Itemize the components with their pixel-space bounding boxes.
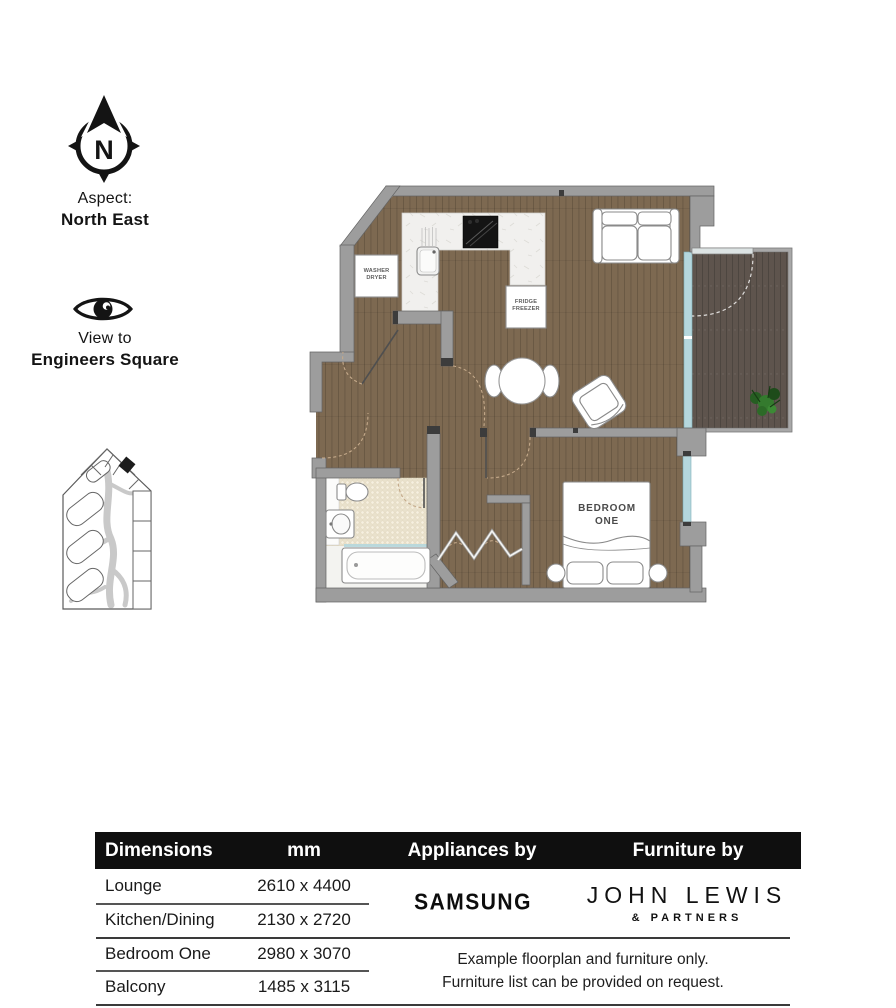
disclaimer-note: Example floorplan and furniture only. Fu…: [373, 937, 793, 1004]
compass-west-tick: [68, 140, 79, 152]
bedside-table-right: [649, 564, 667, 582]
glazing: [683, 252, 692, 522]
bedroom-one-label-1: BEDROOM: [578, 503, 636, 514]
aspect-label: Aspect:: [30, 190, 180, 208]
compass-north-letter: N: [94, 135, 114, 165]
header-appliances-by: Appliances by: [392, 832, 552, 869]
room-name: Balcony: [105, 970, 165, 1003]
bedside-table-left: [547, 564, 565, 582]
apartment-floorplan: WASHER DRYER FRIDGE FREEZER BEDROOM ONE: [300, 172, 800, 612]
fridge-freezer-label-1: FRIDGE: [515, 299, 537, 305]
sofa: [593, 209, 679, 263]
bedroom-one-label-2: ONE: [595, 516, 619, 527]
john-lewis-logo: JOHN LEWIS & PARTNERS: [547, 869, 827, 937]
view-to-value: Engineers Square: [10, 350, 200, 370]
hob: [463, 216, 498, 248]
dimensions-table: Dimensions mm Appliances by Furniture by…: [95, 832, 801, 1008]
view-to-label: View to: [30, 330, 180, 348]
table-bottom-divider: [96, 1004, 790, 1006]
kitchen-sink: [417, 247, 439, 275]
bathtub: [342, 548, 430, 583]
disclaimer-line-1: Example floorplan and furniture only.: [457, 948, 708, 971]
basin: [326, 510, 354, 538]
room-name: Lounge: [105, 869, 162, 902]
site-plan-map: [55, 437, 157, 617]
toilet: [337, 483, 368, 501]
fridge-freezer-label-2: FREEZER: [512, 306, 540, 312]
washer-dryer-label-2: DRYER: [366, 275, 386, 281]
bed: [563, 482, 650, 588]
compass-east-tick: [129, 140, 140, 152]
john-lewis-logo-text: JOHN LEWIS: [587, 882, 788, 909]
balcony: [690, 248, 792, 432]
room-name: Kitchen/Dining: [105, 903, 215, 936]
room-size: 1485 x 3115: [244, 970, 364, 1003]
header-dimensions: Dimensions: [105, 832, 213, 869]
bedroom-window: [683, 456, 691, 522]
header-mm: mm: [244, 832, 364, 869]
table-header-row: Dimensions mm Appliances by Furniture by: [95, 832, 801, 869]
disclaimer-line-2: Furniture list can be provided on reques…: [442, 971, 724, 994]
eye-icon: [70, 291, 136, 327]
compass-icon: N: [66, 92, 142, 184]
balcony-door-leaf: [692, 248, 753, 254]
room-name: Bedroom One: [105, 937, 211, 970]
compass-south-tick: [98, 172, 110, 183]
aspect-value: North East: [15, 210, 195, 230]
floorplan-page: N Aspect: North East View to Engineers S…: [0, 0, 896, 1008]
room-size: 2980 x 3070: [244, 937, 364, 970]
washer-dryer-label-1: WASHER: [364, 268, 390, 274]
john-lewis-partners-text: & PARTNERS: [632, 912, 743, 924]
header-furniture-by: Furniture by: [608, 832, 768, 869]
dining-table: [485, 358, 559, 404]
balcony-glass-wall: [684, 252, 692, 428]
